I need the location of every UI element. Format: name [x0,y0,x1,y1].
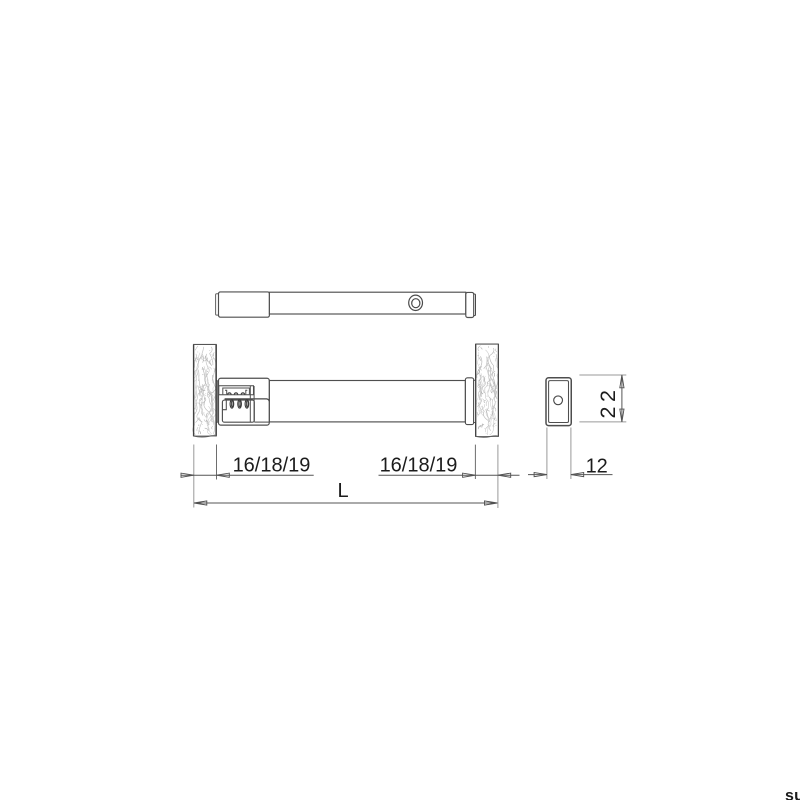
svg-text:su: su [785,787,800,800]
svg-text:L: L [337,480,348,502]
svg-text:12: 12 [586,455,608,477]
svg-text:16/18/19: 16/18/19 [380,454,458,476]
svg-text:16/18/19: 16/18/19 [233,454,311,476]
svg-text:22: 22 [596,386,620,419]
